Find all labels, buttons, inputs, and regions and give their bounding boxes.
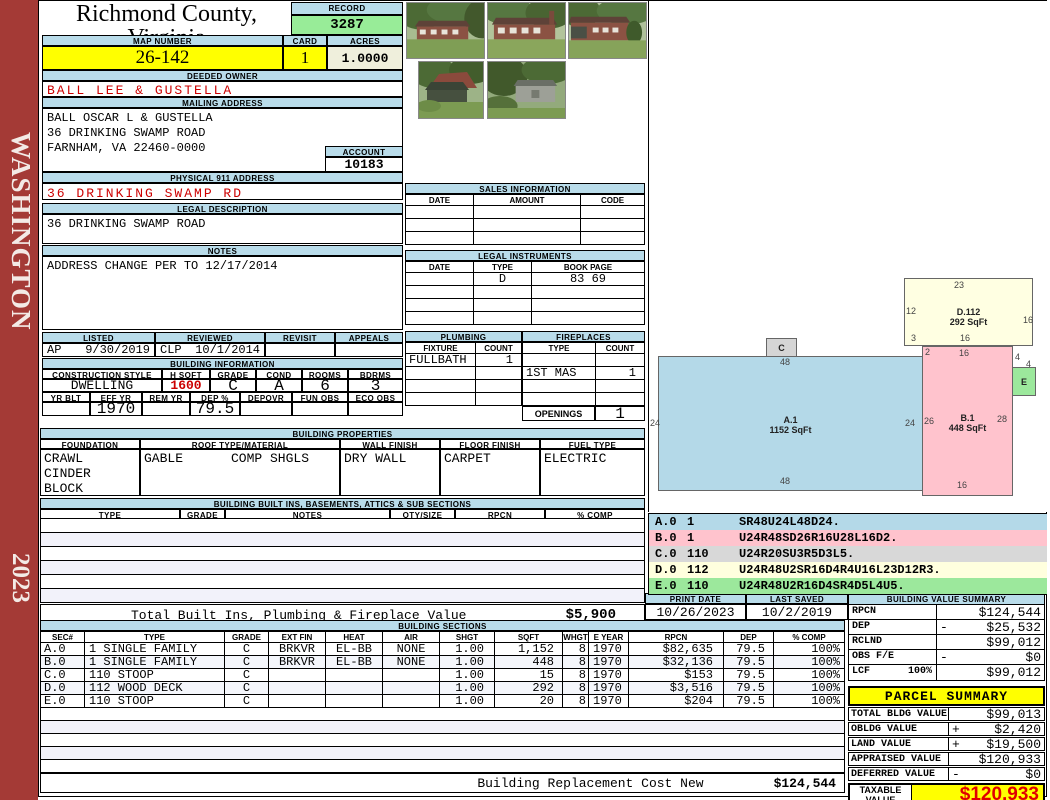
rooms-label: ROOMS <box>302 369 348 379</box>
remyr-value <box>142 402 190 416</box>
li-date-header: DATE <box>406 262 474 273</box>
dim-b-topleft: 2 <box>925 348 930 357</box>
fuel-type-label: FUEL TYPE <box>540 439 645 449</box>
building-properties-label: BUILDING PROPERTIES <box>40 428 645 439</box>
district-label: WASHINGTON <box>5 132 36 331</box>
bdrms-label: BDRMS <box>348 369 403 379</box>
fuel-type-value: ELECTRIC <box>540 449 645 496</box>
sales-information-label: SALES INFORMATION <box>405 183 645 194</box>
plumbing-label: PLUMBING <box>405 331 522 342</box>
building-sketch: D.112 292 SqFt A.1 1152 SqFt B.1 448 SqF… <box>648 1 1047 512</box>
table-cell: E.0 <box>41 695 85 708</box>
table-cell: D.0 <box>41 682 85 695</box>
legend-sec: A.0 <box>649 514 687 530</box>
table-cell: BRKVR <box>269 656 326 669</box>
table-cell <box>406 367 476 380</box>
bi-notes-header: NOTES <box>225 509 390 519</box>
eyear-header: E YEAR <box>589 632 629 643</box>
table-cell: 1.00 <box>440 643 495 656</box>
table-cell: 8 <box>563 695 589 708</box>
whgt-header: WHGT <box>563 632 589 643</box>
reviewed-label: REVIEWED <box>155 332 265 343</box>
parcel-row: LAND VALUE +$19,500 <box>848 737 1045 751</box>
table-row <box>523 354 645 367</box>
bvs-label-text: DEP <box>852 620 870 634</box>
depovr-value <box>240 402 292 416</box>
table-cell: $153 <box>629 669 724 682</box>
rpcn-header: RPCN <box>629 632 724 643</box>
parcel-amount: $99,013 <box>986 707 1041 722</box>
funobs-value <box>292 402 348 416</box>
legend-sec: E.0 <box>649 578 687 594</box>
owner-info-column: Richmond County, Virginia Commissioner o… <box>42 2 403 416</box>
foundation-label: FOUNDATION <box>40 439 140 449</box>
taxable-value-label: TAXABLE VALUE <box>850 785 912 800</box>
plumbing-table: FIXTURE COUNT FULLBATH1 <box>405 342 522 406</box>
bvs-row-rpcn: RPCN $124,544 <box>849 605 1044 620</box>
shape-d-sqft: 292 SqFt <box>905 317 1032 327</box>
type-header: TYPE <box>85 632 225 643</box>
replacement-cost-value: $124,544 <box>774 776 836 791</box>
legend-mult: 1 <box>687 530 739 546</box>
revisit-label: REVISIT <box>265 332 335 343</box>
table-row <box>406 286 645 299</box>
sqft-header: SQFT <box>495 632 563 643</box>
bvs-op: - <box>940 620 948 635</box>
depovr-label: DEPOVR <box>240 392 292 402</box>
table-cell <box>269 695 326 708</box>
table-cell <box>269 669 326 682</box>
floor-finish-value: CARPET <box>440 449 540 496</box>
roof-value: GABLE COMP SHGLS <box>140 449 340 496</box>
table-row: FULLBATH1 <box>406 354 522 367</box>
bvs-pct: 100% <box>908 665 932 680</box>
table-cell: EL-BB <box>326 656 383 669</box>
table-cell: B.0 <box>41 656 85 669</box>
table-row: E.0110 STOOPC1.002081970$20479.5100% <box>41 695 845 708</box>
table-row: 1ST MAS1 <box>523 367 645 380</box>
dep-pct-value: 79.5 <box>190 402 240 416</box>
table-cell: 8 <box>563 643 589 656</box>
dim-d-bottom: 16 <box>960 334 970 343</box>
table-cell <box>406 232 474 245</box>
map-number-label: MAP NUMBER <box>42 35 283 46</box>
building-sections-table: SEC# TYPE GRADE EXT FIN HEAT AIR SHGT SQ… <box>40 631 845 708</box>
table-cell: 100% <box>774 695 845 708</box>
ecoobs-label: ECO OBS <box>348 392 403 402</box>
table-cell <box>532 299 645 312</box>
table-cell: 1 <box>476 354 522 367</box>
table-cell: 100% <box>774 643 845 656</box>
bvs-label-text: RPCN <box>852 605 876 619</box>
sales-date-header: DATE <box>406 195 474 206</box>
yrblt-value <box>42 402 90 416</box>
parcel-amount: $0 <box>1025 767 1041 782</box>
table-cell <box>581 206 645 219</box>
parcel-row: DEFERRED VALUE -$0 <box>848 767 1045 781</box>
legend-row-d: D.0 112 U24R48U2SR16D4R4U16L23D12R3. <box>649 562 1047 578</box>
table-cell: 8 <box>563 656 589 669</box>
table-cell: 20 <box>495 695 563 708</box>
shape-a-label: A.1 <box>659 415 922 425</box>
table-cell <box>476 393 522 406</box>
table-cell: C <box>225 669 269 682</box>
sketch-shape-A: A.1 1152 SqFt <box>658 356 923 491</box>
table-cell: C <box>225 682 269 695</box>
building-value-summary-label: BUILDING VALUE SUMMARY <box>849 594 1044 605</box>
reviewed-value: CLP 10/1/2014 <box>155 343 265 357</box>
legend-mult: 112 <box>687 562 739 578</box>
comp-header: % COMP <box>774 632 845 643</box>
bi-qty-header: QTY/SIZE <box>390 509 455 519</box>
table-cell <box>383 695 440 708</box>
taxable-value-amount: $120,933 <box>912 785 1043 800</box>
record-value: 3287 <box>291 15 403 35</box>
parcel-row: TOTAL BLDG VALUE $99,013 <box>848 707 1045 721</box>
table-cell: 79.5 <box>724 656 774 669</box>
legend-code: U24R48U2SR16D4R4U16L23D12R3. <box>739 562 941 578</box>
wall-finish-value: DRY WALL <box>340 449 440 496</box>
parcel-row-label: LAND VALUE <box>849 738 949 750</box>
bvs-amount: $99,012 <box>986 635 1041 650</box>
parcel-op: + <box>952 722 960 737</box>
roof-label: ROOF TYPE/MATERIAL <box>140 439 340 449</box>
table-cell: 1.00 <box>440 695 495 708</box>
li-type-header: TYPE <box>474 262 532 273</box>
parcel-op: + <box>952 737 960 752</box>
table-row: B.01 SINGLE FAMILYCBRKVREL-BBNONE1.00448… <box>41 656 845 669</box>
legend-mult: 1 <box>687 514 739 530</box>
property-photo-1 <box>406 2 485 59</box>
table-cell: FULLBATH <box>406 354 476 367</box>
parcel-amount: $120,933 <box>979 752 1041 767</box>
bvs-amount: $0 <box>1025 650 1041 665</box>
listed-date: 9/30/2019 <box>85 343 150 357</box>
table-cell: C <box>225 643 269 656</box>
dim-d-right: 16 <box>1023 316 1033 325</box>
bvs-label-text: OBS F/E <box>852 650 894 664</box>
yrblt-label: YR BLT <box>42 392 90 402</box>
table-row <box>406 232 645 245</box>
table-cell: 1.00 <box>440 669 495 682</box>
effyr-label: EFF YR <box>90 392 142 402</box>
bi-type-header: TYPE <box>40 509 180 519</box>
table-row: C.0110 STOOPC1.001581970$15379.5100% <box>41 669 845 682</box>
bvs-amount: $99,012 <box>986 665 1041 680</box>
foundation-line2: CINDER BLOCK <box>44 466 136 496</box>
table-cell <box>596 354 645 367</box>
table-cell: 100% <box>774 682 845 695</box>
bdrms-value: 3 <box>348 379 403 392</box>
rooms-value: 6 <box>302 379 348 392</box>
bvs-amount: $25,532 <box>986 620 1041 635</box>
legal-instruments-label: LEGAL INSTRUMENTS <box>405 250 645 261</box>
table-cell: 1 <box>596 367 645 380</box>
building-sections: BUILDING SECTIONS SEC# TYPE GRADE EXT FI… <box>40 620 845 793</box>
fireplaces-section: FIREPLACES TYPE COUNT 1ST MAS1 OPENINGS … <box>522 331 645 421</box>
table-cell: 83 69 <box>532 273 645 286</box>
grade-header: GRADE <box>225 632 269 643</box>
sketch-shape-E: E <box>1012 367 1036 396</box>
table-cell <box>476 367 522 380</box>
dep-header: DEP <box>724 632 774 643</box>
mailing-line: BALL OSCAR L & GUSTELLA <box>47 111 398 126</box>
dim-e-2: 4 <box>1026 360 1031 369</box>
account-value: 10183 <box>325 157 403 172</box>
table-cell <box>406 273 474 286</box>
plumbing-section: PLUMBING FIXTURE COUNT FULLBATH1 <box>405 331 522 406</box>
parcel-amount: $19,500 <box>986 737 1041 752</box>
bi-grade-header: GRADE <box>180 509 225 519</box>
openings-label: OPENINGS <box>522 406 595 421</box>
listed-label: LISTED <box>42 332 155 343</box>
empty-row <box>41 547 644 561</box>
table-cell: A.0 <box>41 643 85 656</box>
table-row <box>406 206 645 219</box>
record-label: RECORD <box>291 2 403 15</box>
card-label: CARD <box>283 35 327 46</box>
foundation-value: CRAWL CINDER BLOCK <box>40 449 140 496</box>
map-number-value: 26-142 <box>42 46 283 70</box>
physical-address-value: 36 DRINKING SWAMP RD <box>42 183 403 200</box>
bvs-label-text: RCLND <box>852 635 882 649</box>
table-row <box>406 312 645 325</box>
table-cell <box>474 219 581 232</box>
parcel-summary-label: PARCEL SUMMARY <box>848 686 1045 706</box>
parcel-row-label: OBLDG VALUE <box>849 723 949 735</box>
shape-a-sqft: 1152 SqFt <box>659 425 922 435</box>
legend-row-a: A.0 1 SR48U24L48D24. <box>649 514 1047 530</box>
account-label: ACCOUNT <box>325 146 403 157</box>
table-cell <box>532 312 645 325</box>
legend-code: U24R48U2R16D4SR4D5L4U5. <box>739 578 905 594</box>
shape-b-sqft: 448 SqFt <box>923 423 1012 433</box>
cond-value: A <box>256 379 302 392</box>
table-cell <box>406 393 476 406</box>
ecoobs-value <box>348 402 403 416</box>
table-cell <box>596 393 645 406</box>
funobs-label: FUN OBS <box>292 392 348 402</box>
building-information-label: BUILDING INFORMATION <box>42 358 403 369</box>
table-cell: 1 SINGLE FAMILY <box>85 643 225 656</box>
table-cell <box>326 682 383 695</box>
table-cell: 8 <box>563 669 589 682</box>
sketch-shape-C: C <box>766 338 797 357</box>
shape-d-label: D.112 <box>905 307 1032 317</box>
table-cell <box>326 695 383 708</box>
fireplaces-count-header: COUNT <box>596 343 645 354</box>
legend-code: U24R20SU3R5D3L5. <box>739 546 854 562</box>
revisit-value <box>265 343 335 357</box>
table-cell <box>523 354 596 367</box>
wall-finish-label: WALL FINISH <box>340 439 440 449</box>
legend-row-c: C.0 110 U24R20SU3R5D3L5. <box>649 546 1047 562</box>
table-cell: 1970 <box>589 669 629 682</box>
table-row <box>406 299 645 312</box>
roof-type-value: GABLE <box>144 451 183 494</box>
table-cell: 79.5 <box>724 682 774 695</box>
shape-c-label: C <box>767 339 796 353</box>
last-saved-value: 10/2/2019 <box>746 604 848 620</box>
table-cell <box>326 669 383 682</box>
table-cell: 100% <box>774 669 845 682</box>
legend-row-b: B.0 1 U24R48SD26R16U28L16D2. <box>649 530 1047 546</box>
construction-style-label: CONSTRUCTION STYLE <box>42 369 162 379</box>
sec-header: SEC# <box>41 632 85 643</box>
record-box: RECORD 3287 <box>291 2 403 35</box>
table-cell <box>474 206 581 219</box>
cond-label: COND <box>256 369 302 379</box>
table-cell: NONE <box>383 656 440 669</box>
table-cell <box>406 312 474 325</box>
dim-d-bottom-left: 3 <box>911 334 916 343</box>
parcel-row: APPRAISED VALUE $120,933 <box>848 752 1045 766</box>
table-cell: C <box>225 695 269 708</box>
effyr-value: 1970 <box>90 402 142 416</box>
table-cell <box>523 393 596 406</box>
notes-value: ADDRESS CHANGE PER TO 12/17/2014 <box>42 256 403 330</box>
parcel-row-label: APPRAISED VALUE <box>849 753 949 765</box>
table-cell: 292 <box>495 682 563 695</box>
openings-value: 1 <box>595 406 645 421</box>
deeded-owner-label: DEEDED OWNER <box>42 70 403 81</box>
table-cell: 110 STOOP <box>85 695 225 708</box>
empty-row <box>41 589 644 603</box>
dim-b-top: 16 <box>959 349 969 358</box>
bvs-row-dep: DEP -$25,532 <box>849 620 1044 635</box>
fireplaces-table: TYPE COUNT 1ST MAS1 <box>522 342 645 406</box>
table-cell: 1970 <box>589 656 629 669</box>
dim-a-right: 24 <box>905 419 915 428</box>
table-row <box>406 219 645 232</box>
account-box: ACCOUNT 10183 <box>325 146 403 172</box>
table-cell: C <box>225 656 269 669</box>
table-cell <box>474 299 532 312</box>
table-cell: $3,516 <box>629 682 724 695</box>
table-cell <box>474 312 532 325</box>
bvs-amount: $124,544 <box>979 605 1041 620</box>
grade-value: C <box>210 379 256 392</box>
legend-sec: C.0 <box>649 546 687 562</box>
table-row: D.0112 WOOD DECKC1.0029281970$3,51679.51… <box>41 682 845 695</box>
dim-b-right: 28 <box>997 415 1007 424</box>
notes-label: NOTES <box>42 245 403 256</box>
mailing-line: 36 DRINKING SWAMP ROAD <box>47 126 398 141</box>
replacement-cost-label: Building Replacement Cost New <box>477 776 703 791</box>
table-cell <box>269 682 326 695</box>
print-date-value: 10/26/2023 <box>645 604 746 620</box>
table-cell <box>383 669 440 682</box>
dim-b-bottom: 16 <box>957 481 967 490</box>
table-cell: 1970 <box>589 695 629 708</box>
empty-row <box>41 519 644 533</box>
table-cell: $32,136 <box>629 656 724 669</box>
table-cell: 15 <box>495 669 563 682</box>
table-cell <box>474 286 532 299</box>
review-value-row: AP 9/30/2019 CLP 10/1/2014 <box>42 343 403 357</box>
table-cell: 448 <box>495 656 563 669</box>
built-ins-label: BUILDING BUILT INS, BASEMENTS, ATTICS & … <box>40 498 645 509</box>
legend-row-e: E.0 110 U24R48U2R16D4SR4D5L4U5. <box>649 578 1047 594</box>
table-cell: 1.00 <box>440 656 495 669</box>
table-row <box>523 393 645 406</box>
building-value-summary: BUILDING VALUE SUMMARY RPCN $124,544 DEP… <box>848 593 1045 681</box>
building-sections-label: BUILDING SECTIONS <box>40 620 845 631</box>
sidebar: WASHINGTON 2023 <box>0 0 38 800</box>
fireplaces-type-header: TYPE <box>523 343 596 354</box>
roof-material-value: COMP SHGLS <box>231 451 309 494</box>
property-photo-2 <box>487 2 566 59</box>
dim-e-1: 4 <box>1015 353 1020 362</box>
table-cell: BRKVR <box>269 643 326 656</box>
table-cell: 79.5 <box>724 643 774 656</box>
table-row <box>406 367 522 380</box>
legend-sec: B.0 <box>649 530 687 546</box>
plumbing-fixture-header: FIXTURE <box>406 343 476 354</box>
table-cell <box>406 219 474 232</box>
table-cell: 1,152 <box>495 643 563 656</box>
building-properties-band: BUILDING PROPERTIES FOUNDATION ROOF TYPE… <box>40 428 645 626</box>
table-cell <box>523 380 596 393</box>
table-cell: NONE <box>383 643 440 656</box>
table-cell <box>476 380 522 393</box>
shgt-header: SHGT <box>440 632 495 643</box>
dim-a-left: 24 <box>650 419 660 428</box>
reviewed-date: 10/1/2014 <box>195 343 260 357</box>
sales-code-header: CODE <box>581 195 645 206</box>
empty-row <box>41 760 844 773</box>
bvs-row-obs: OBS F/E -$0 <box>849 650 1044 665</box>
property-photo-4 <box>418 61 484 119</box>
parcel-row-label: TOTAL BLDG VALUE <box>849 708 949 720</box>
reviewed-code: CLP <box>160 343 182 357</box>
county-header: Richmond County, Virginia Commissioner o… <box>42 2 291 35</box>
table-cell: C.0 <box>41 669 85 682</box>
physical-address-label: PHYSICAL 911 ADDRESS <box>42 172 403 183</box>
table-cell <box>406 286 474 299</box>
dim-a-top: 48 <box>780 358 790 367</box>
li-bookpage-header: BOOK PAGE <box>532 262 645 273</box>
sketch-legend: A.0 1 SR48U24L48D24. B.0 1 U24R48SD26R16… <box>648 513 1047 595</box>
table-cell: 1.00 <box>440 682 495 695</box>
taxable-value-row: TAXABLE VALUE $120,933 <box>848 783 1045 800</box>
table-row <box>406 380 522 393</box>
deeded-owner-value: BALL LEE & GUSTELLA <box>42 81 403 97</box>
floor-finish-label: FLOOR FINISH <box>440 439 540 449</box>
grade-label: GRADE <box>210 369 256 379</box>
table-cell: 79.5 <box>724 669 774 682</box>
listed-code: AP <box>47 343 61 357</box>
table-cell: 1ST MAS <box>523 367 596 380</box>
table-cell <box>406 380 476 393</box>
table-cell: 1970 <box>589 682 629 695</box>
empty-row <box>41 721 844 734</box>
table-cell: 1970 <box>589 643 629 656</box>
shape-e-label: E <box>1013 368 1035 387</box>
table-cell: 79.5 <box>724 695 774 708</box>
table-cell: D <box>474 273 532 286</box>
parcel-op: - <box>952 767 960 782</box>
bi-rpcn-header: RPCN <box>455 509 545 519</box>
table-cell <box>581 232 645 245</box>
table-cell <box>474 232 581 245</box>
legend-code: SR48U24L48D24. <box>739 514 840 530</box>
empty-row <box>41 533 644 547</box>
extfin-header: EXT FIN <box>269 632 326 643</box>
sales-legal-column: SALES INFORMATION DATE AMOUNT CODE LEGAL… <box>405 183 645 421</box>
mailing-address-block: BALL OSCAR L & GUSTELLA 36 DRINKING SWAM… <box>42 108 403 172</box>
table-cell <box>406 299 474 312</box>
